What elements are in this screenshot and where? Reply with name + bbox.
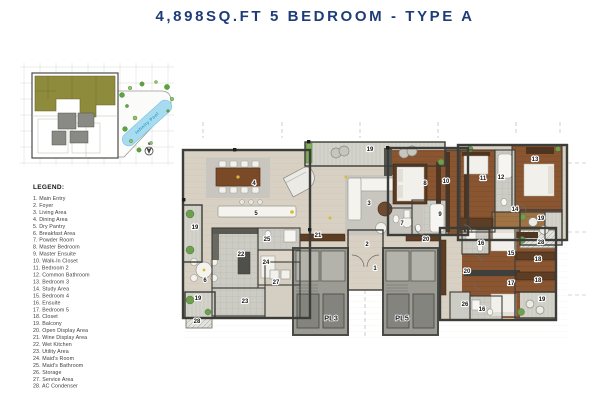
legend-item: 12. Common Bathroom xyxy=(33,272,183,279)
page-title: 4,898SQ.FT 5 BEDROOM - TYPE A xyxy=(115,8,515,25)
legend-item: 11. Bedroom 2 xyxy=(33,265,183,272)
room-label-16: 16 xyxy=(479,307,486,313)
room-label-20: 20 xyxy=(464,269,471,275)
legend-item: 1. Main Entry xyxy=(33,196,183,203)
legend-item: 4. Dining Area xyxy=(33,216,183,223)
room-label-11: 11 xyxy=(480,176,487,182)
legend: LEGEND: 1. Main Entry2. Foyer3. Living A… xyxy=(33,183,183,390)
room-label-19: 19 xyxy=(539,297,546,303)
legend-item: 19. Balcony xyxy=(33,321,183,328)
room-label-15: 15 xyxy=(508,251,515,257)
legend-item: 20. Open Display Area xyxy=(33,328,183,335)
room-label-17: 17 xyxy=(508,281,515,287)
legend-item: 25. Maid's Bathroom xyxy=(33,362,183,369)
legend-item: 2. Foyer xyxy=(33,202,183,209)
room-label-13: 13 xyxy=(532,157,539,163)
room-label-19: 19 xyxy=(195,296,202,302)
legend-heading: LEGEND: xyxy=(33,183,183,191)
legend-item: 17. Bedroom 5 xyxy=(33,307,183,314)
room-label-23: 23 xyxy=(242,299,249,305)
master-bed xyxy=(393,164,427,204)
legend-item: 13. Bedroom 3 xyxy=(33,279,183,286)
room-label-28: 28 xyxy=(538,240,545,246)
media-wall xyxy=(464,270,520,276)
key-plan: Infinity Pool N xyxy=(18,60,178,175)
room-label-10: 10 xyxy=(443,179,450,185)
room-label-22: 22 xyxy=(238,252,245,258)
legend-item: 10. Walk-In Closet xyxy=(33,258,183,265)
coffee-table xyxy=(378,202,392,216)
legend-item: 9. Master Ensuite xyxy=(33,251,183,258)
room-label-26: 26 xyxy=(462,302,469,308)
room-label-21: 21 xyxy=(315,233,322,239)
room-label-24: 24 xyxy=(263,260,270,266)
legend-item: 7. Powder Room xyxy=(33,237,183,244)
legend-item: 28. AC Condenser xyxy=(33,383,183,390)
legend-item: 14. Study Area xyxy=(33,286,183,293)
floor-plan: 1234567891011121314151616171818191919191… xyxy=(178,122,590,347)
legend-item: 15. Bedroom 4 xyxy=(33,293,183,300)
legend-item: 3. Living Area xyxy=(33,209,183,216)
room-label-16: 16 xyxy=(478,241,485,247)
legend-item: 21. Wine Display Area xyxy=(33,335,183,342)
legend-item: 8. Master Bedroom xyxy=(33,244,183,251)
room-label-25: 25 xyxy=(264,237,271,243)
legend-item: 18. Closet xyxy=(33,314,183,321)
room-label-19: 19 xyxy=(538,216,545,222)
room-label-19: 19 xyxy=(367,147,374,153)
legend-item: 27. Service Area xyxy=(33,376,183,383)
room-label-20: 20 xyxy=(423,237,430,243)
room-label-14: 14 xyxy=(512,207,519,213)
room-label-PL5: PL5 xyxy=(395,314,409,323)
room-label-18: 18 xyxy=(535,278,542,284)
legend-item: 16. Ensuite xyxy=(33,300,183,307)
room-label-18: 18 xyxy=(535,257,542,263)
north-label: N xyxy=(148,142,151,146)
room-label-28: 28 xyxy=(194,319,201,325)
legend-item: 24. Maid's Room xyxy=(33,355,183,362)
legend-item: 22. Wet Kitchen xyxy=(33,342,183,349)
legend-list: 1. Main Entry2. Foyer3. Living Area4. Di… xyxy=(33,196,183,391)
brochure-page: 4,898SQ.FT 5 BEDROOM - TYPE A xyxy=(0,0,600,400)
legend-item: 23. Utility Area xyxy=(33,348,183,355)
legend-item: 26. Storage xyxy=(33,369,183,376)
room-label-12: 12 xyxy=(498,175,505,181)
legend-item: 5. Dry Pantry xyxy=(33,223,183,230)
legend-item: 6. Breakfast Area xyxy=(33,230,183,237)
room-label-PL3: PL3 xyxy=(324,314,338,323)
room-label-19: 19 xyxy=(192,225,199,231)
room-label-27: 27 xyxy=(273,280,280,286)
